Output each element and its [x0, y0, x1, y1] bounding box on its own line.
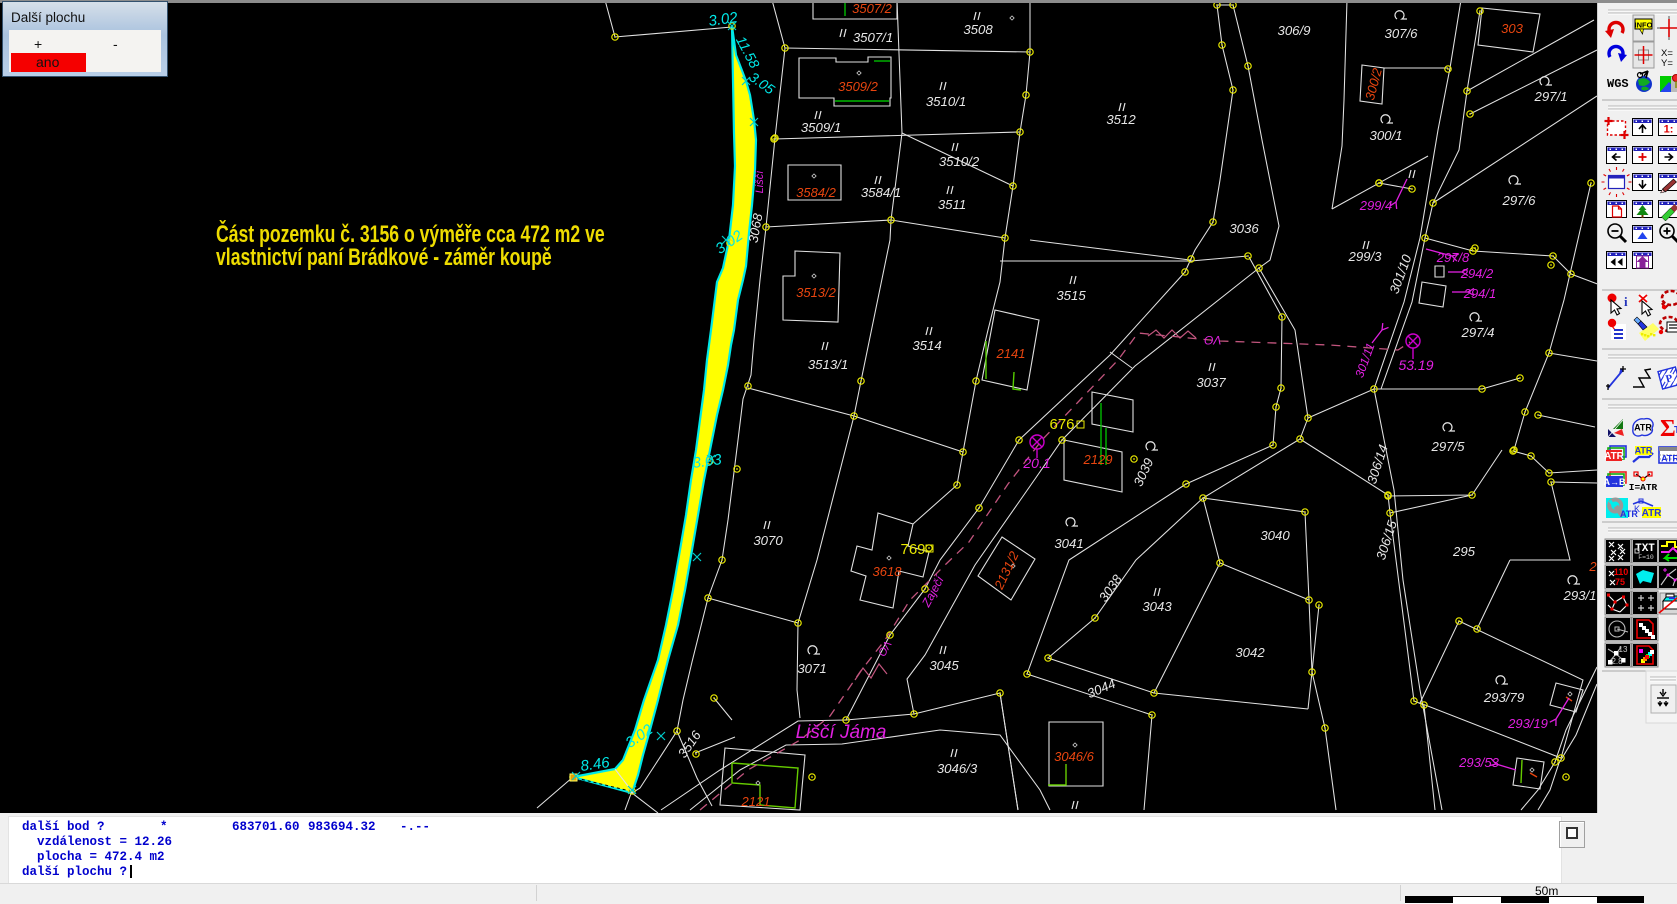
svg-text:303: 303: [1501, 21, 1523, 36]
svg-text:I=ATR: I=ATR: [1629, 482, 1658, 493]
svg-text:3037: 3037: [1196, 375, 1226, 390]
svg-text:3513/2: 3513/2: [796, 285, 837, 300]
svg-text:3618: 3618: [873, 564, 903, 579]
svg-text:293/1: 293/1: [1562, 588, 1596, 603]
svg-text:3513/1: 3513/1: [808, 357, 848, 372]
svg-text:K: K: [1634, 504, 1640, 514]
svg-text:297/6: 297/6: [1501, 193, 1536, 208]
svg-text:3508: 3508: [963, 22, 993, 37]
svg-text:2: 2: [1588, 559, 1597, 574]
svg-text:3040: 3040: [1260, 528, 1290, 543]
svg-text:3515: 3515: [1056, 288, 1086, 303]
svg-text:3584/2: 3584/2: [796, 185, 837, 200]
svg-text:3036: 3036: [1229, 221, 1259, 236]
svg-text:297/4: 297/4: [1460, 325, 1494, 340]
svg-text:299/3: 299/3: [1347, 249, 1382, 264]
svg-text:3046/3: 3046/3: [937, 761, 978, 776]
svg-text:vlastnictví paní Brádkové - zá: vlastnictví paní Brádkové - záměr koupě: [216, 244, 552, 270]
svg-text:13: 13: [1619, 645, 1628, 654]
svg-text:2129: 2129: [1083, 452, 1113, 467]
svg-text:3510/2: 3510/2: [939, 154, 980, 169]
svg-text:307/6: 307/6: [1384, 26, 1418, 41]
svg-text:3584/1: 3584/1: [861, 185, 901, 200]
svg-text:306/9: 306/9: [1277, 23, 1311, 38]
svg-text:ATR: ATR: [1635, 446, 1653, 456]
svg-text:F=10: F=10: [1638, 554, 1654, 561]
svg-text:20.1: 20.1: [1022, 455, 1050, 471]
svg-text:3042: 3042: [1235, 645, 1265, 660]
svg-text:293/79: 293/79: [1483, 690, 1525, 705]
svg-text:INFO: INFO: [1635, 20, 1653, 29]
svg-text:Liščí: Liščí: [754, 170, 766, 194]
svg-text:110: 110: [1614, 567, 1629, 577]
svg-text:75: 75: [1615, 577, 1625, 587]
svg-text:3514: 3514: [912, 338, 941, 353]
svg-text:2141: 2141: [996, 346, 1026, 361]
svg-text:3507/1: 3507/1: [853, 30, 893, 45]
svg-text:3510/1: 3510/1: [926, 94, 966, 109]
svg-text:294/2: 294/2: [1460, 266, 1494, 281]
svg-text:3507/2: 3507/2: [852, 3, 893, 16]
svg-text:3512: 3512: [1106, 112, 1136, 127]
svg-text:297/5: 297/5: [1430, 439, 1465, 454]
svg-text:Y=: Y=: [1661, 58, 1673, 69]
svg-text:1:: 1:: [1664, 124, 1674, 136]
svg-text:3509/2: 3509/2: [838, 79, 879, 94]
svg-text:293/19: 293/19: [1507, 716, 1548, 731]
svg-text:2.8: 2.8: [1611, 657, 1623, 666]
svg-text:3070: 3070: [753, 533, 783, 548]
svg-text:3509/1: 3509/1: [801, 120, 841, 135]
svg-text:293/53: 293/53: [1458, 755, 1500, 770]
svg-text:295: 295: [1452, 544, 1476, 559]
svg-text:2121: 2121: [741, 794, 771, 809]
svg-text:A→B: A→B: [1604, 477, 1626, 487]
svg-text:769: 769: [900, 541, 925, 558]
svg-text:3043: 3043: [1142, 599, 1172, 614]
svg-text:ATR: ATR: [1604, 451, 1625, 462]
svg-text:3045: 3045: [929, 658, 959, 673]
svg-text:3511: 3511: [938, 197, 966, 212]
svg-text:3046/6: 3046/6: [1054, 749, 1095, 764]
svg-text:ATR: ATR: [1642, 508, 1663, 519]
svg-text:ATR: ATR: [1661, 454, 1677, 464]
svg-text:Liščí Jáma: Liščí Jáma: [796, 722, 887, 743]
svg-text:3041: 3041: [1054, 536, 1083, 551]
svg-text:3071: 3071: [797, 661, 826, 676]
svg-text:WGS: WGS: [1607, 77, 1629, 91]
svg-text:294/1: 294/1: [1463, 286, 1497, 301]
svg-text:297/8: 297/8: [1436, 250, 1470, 265]
svg-text:VO: VO: [1204, 333, 1221, 347]
svg-text:676: 676: [1049, 416, 1074, 433]
svg-text:297/1: 297/1: [1533, 89, 1567, 104]
svg-text:i: i: [1624, 294, 1628, 309]
svg-text:ATR: ATR: [1634, 423, 1652, 433]
svg-text:53.19: 53.19: [1398, 357, 1433, 373]
svg-text:299/4: 299/4: [1359, 198, 1393, 213]
svg-text:300/1: 300/1: [1369, 128, 1402, 143]
